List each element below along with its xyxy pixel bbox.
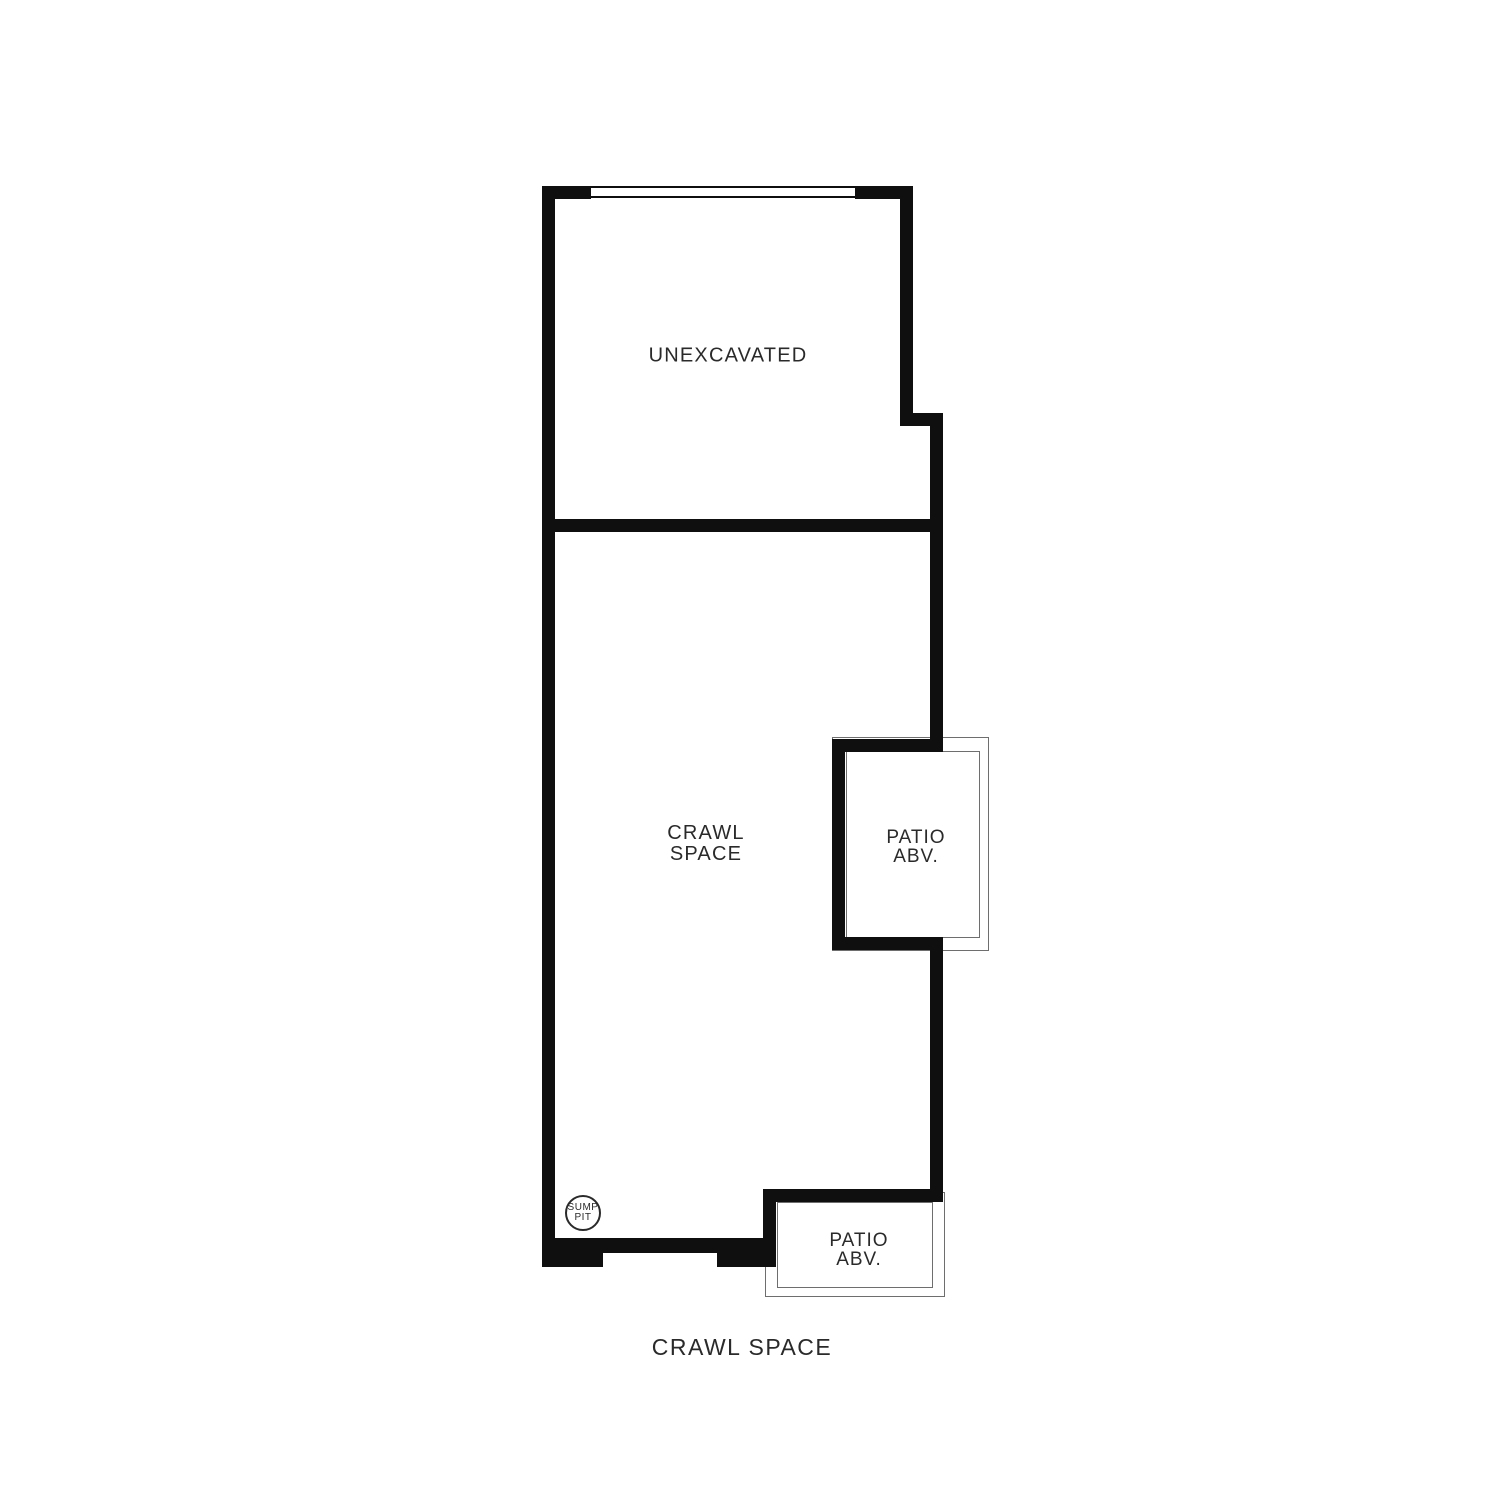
crawl-space-room-label: CRAWL SPACE [667, 823, 744, 865]
wall-patio-right-side [832, 739, 845, 950]
wall-patio-bottom-top [763, 1189, 943, 1202]
wall-divider-unexcavated-crawl [542, 519, 943, 532]
floor-plan-canvas: UNEXCAVATED CRAWL SPACE PATIO ABV. PATIO… [0, 0, 1500, 1500]
unexcavated-room-label: UNEXCAVATED [649, 346, 808, 367]
crawl-space-label-line2: SPACE [667, 844, 744, 865]
wall-patio-right-bottom [832, 937, 943, 950]
wall-bottom-right-segment [717, 1238, 776, 1267]
sump-pit-label-line2: PIT [568, 1213, 599, 1223]
plan-title: CRAWL SPACE [652, 1335, 833, 1359]
patio-right-label-line1: PATIO [886, 828, 945, 847]
window-opening-top [591, 186, 855, 198]
patio-bottom-label-line1: PATIO [829, 1231, 888, 1250]
wall-bottom-left-segment [542, 1238, 603, 1267]
wall-right-unexcavated [900, 186, 913, 426]
crawl-space-label-line1: CRAWL [667, 823, 744, 844]
wall-right-upper [930, 413, 943, 752]
wall-bottom-step-segment [603, 1238, 717, 1253]
patio-right-label: PATIO ABV. [886, 828, 945, 866]
wall-patio-right-top [832, 739, 943, 752]
wall-left-exterior [542, 186, 555, 1267]
sump-pit-label: SUMP PIT [568, 1203, 599, 1223]
patio-bottom-label: PATIO ABV. [829, 1231, 888, 1269]
patio-right-label-line2: ABV. [886, 847, 945, 866]
wall-right-lower [930, 937, 943, 1202]
patio-bottom-label-line2: ABV. [829, 1250, 888, 1269]
sump-pit-symbol: SUMP PIT [565, 1195, 601, 1231]
